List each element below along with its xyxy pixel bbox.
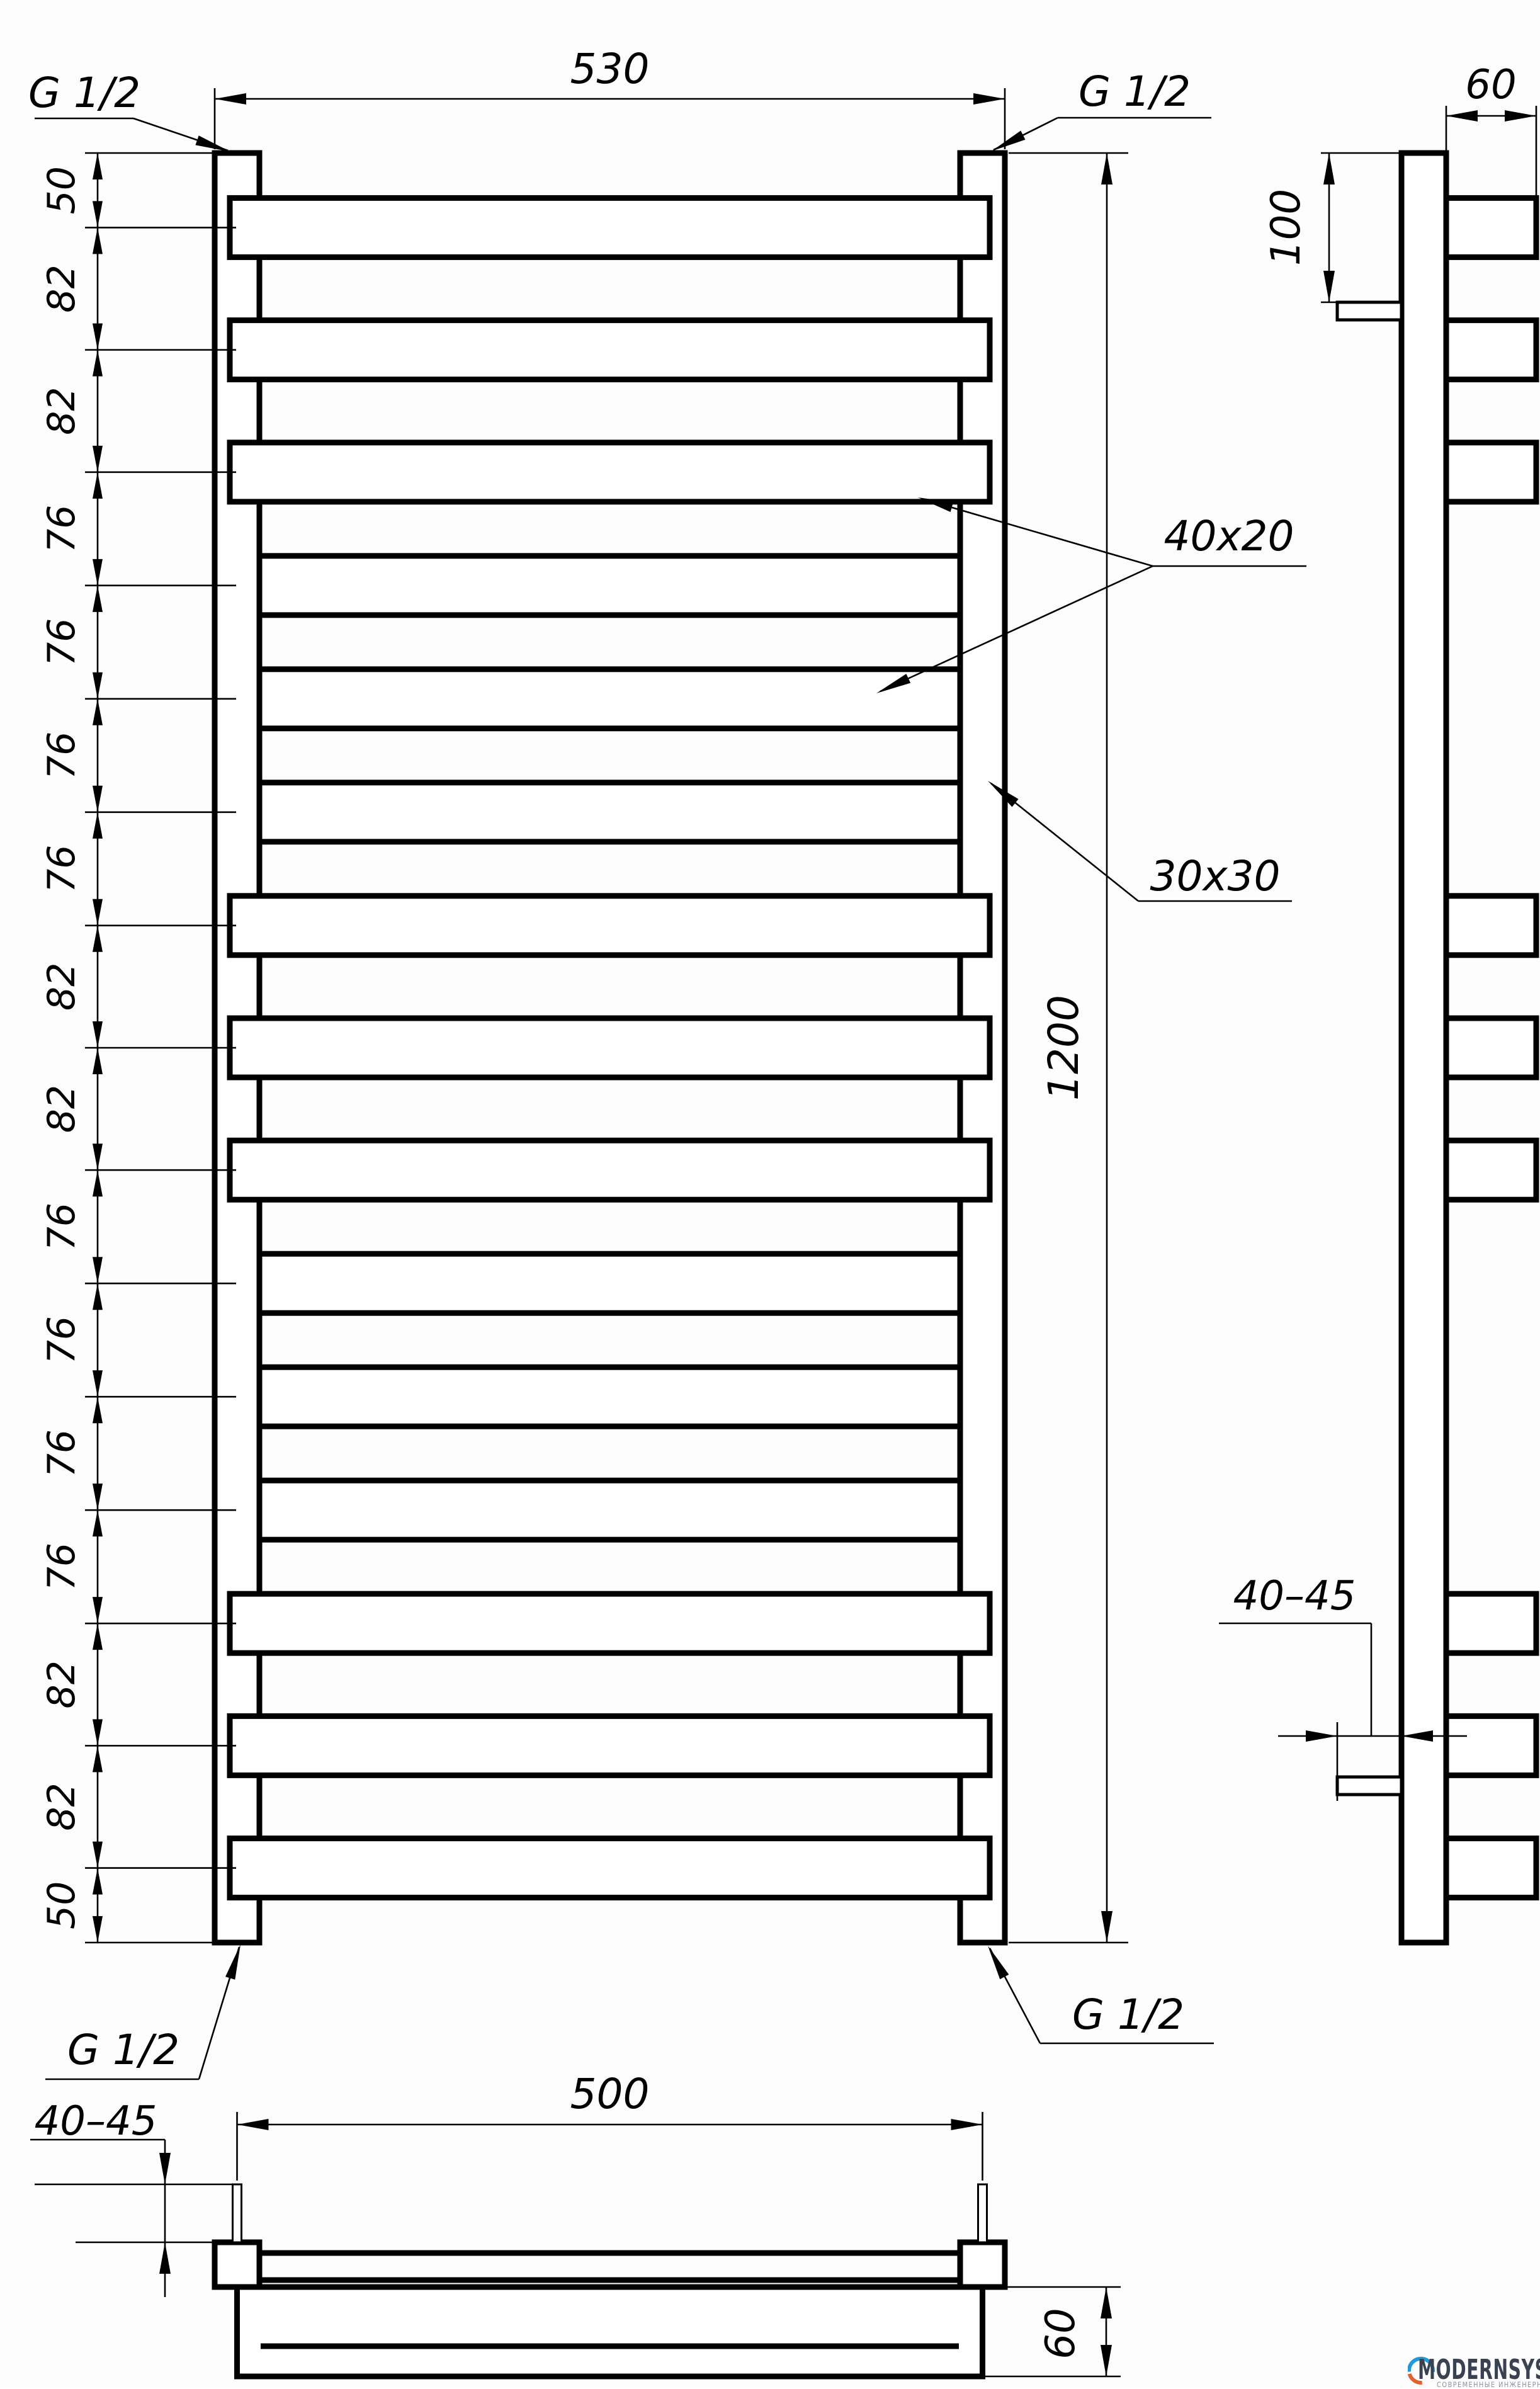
chain-dim-0: 50 (40, 166, 84, 214)
chain-dim-11: 76 (40, 1429, 84, 1477)
chain-dim-8: 82 (40, 1085, 84, 1133)
dim-1200: 1200 (1039, 995, 1088, 1101)
arrowhead (93, 1868, 103, 1895)
front-rung-narrow (259, 669, 960, 729)
side-rung (1446, 1594, 1536, 1653)
front-rung-wide (230, 896, 990, 955)
thread-bottom-left-arrow (225, 1944, 241, 1980)
drawing-sheet: 5301200508282767676768282767676768282501… (0, 0, 1540, 2388)
arrowhead (93, 446, 103, 472)
rail-profile-label-text: 30x30 (1150, 852, 1280, 900)
thread-bottom-right-text: G 1/2 (1072, 1990, 1184, 2039)
chain-dim-15: 50 (40, 1881, 84, 1929)
arrowhead (237, 2119, 269, 2130)
arrowhead (1505, 110, 1536, 122)
front-rung-wide (230, 198, 990, 257)
front-rung-wide (230, 321, 990, 380)
front-rung-narrow (259, 783, 960, 842)
bottom-left-rail-section (215, 2242, 259, 2287)
side-rung (1446, 1018, 1536, 1077)
front-rung-narrow (259, 1367, 960, 1426)
arrowhead (93, 1397, 103, 1423)
thread-bottom-right-arrow (988, 1946, 1009, 1979)
front-rung-wide (230, 1018, 990, 1077)
chain-dim-14: 82 (40, 1783, 84, 1830)
arrowhead (93, 1021, 103, 1048)
arrowhead (93, 1283, 103, 1310)
dim-40-45-bottom: 40–45 (35, 2098, 157, 2145)
arrowhead (159, 2153, 171, 2184)
arrowhead (93, 472, 103, 499)
arrowhead (1101, 2287, 1112, 2318)
arrowhead (93, 201, 103, 227)
chain-dim-6: 76 (40, 845, 84, 893)
chain-dim-9: 76 (40, 1203, 84, 1251)
dim-40-45-side: 40–45 (1233, 1573, 1356, 1620)
dim-60-side: 60 (1465, 62, 1516, 108)
side-rung (1446, 443, 1536, 502)
bottom-right-rail-section (960, 2242, 1005, 2287)
arrowhead (93, 586, 103, 612)
front-rung-narrow (259, 1254, 960, 1313)
thread-top-left-text: G 1/2 (28, 69, 140, 117)
front-rung-wide (230, 1839, 990, 1898)
dim-500: 500 (570, 2070, 650, 2118)
side-rung (1446, 1839, 1536, 1898)
dim-530: 530 (570, 45, 650, 93)
thread-top-right-text: G 1/2 (1079, 67, 1191, 116)
arrowhead (93, 926, 103, 952)
arrowhead (93, 1719, 103, 1745)
arrowhead (93, 1510, 103, 1536)
arrowhead (1101, 1911, 1113, 1943)
chain-dim-10: 76 (40, 1316, 84, 1364)
chain-dim-2: 82 (40, 387, 84, 435)
arrowhead (93, 672, 103, 699)
bottom-right-bracket-stub (978, 2184, 987, 2242)
arrowhead (1323, 153, 1335, 184)
arrowhead (93, 153, 103, 179)
side-rung (1446, 1716, 1536, 1775)
dim-60-bottom: 60 (1038, 2308, 1084, 2359)
arrowhead (215, 93, 246, 105)
front-rung-wide (230, 1594, 990, 1653)
side-rung (1446, 896, 1536, 955)
arrowhead (93, 699, 103, 725)
arrowhead (1101, 2345, 1112, 2376)
side-rung (1446, 198, 1536, 257)
arrowhead (93, 786, 103, 812)
front-rung-wide (230, 1140, 990, 1200)
arrowhead (93, 559, 103, 586)
front-rung-narrow (259, 1480, 960, 1540)
chain-dim-7: 82 (40, 963, 84, 1011)
arrowhead (93, 1745, 103, 1772)
arrowhead (1101, 153, 1113, 184)
bottom-left-bracket-stub (233, 2184, 242, 2242)
arrowhead (93, 350, 103, 377)
brand-logo: MODERNSYS СОВРЕМЕННЫЕ ИНЖЕНЕРНЫЕ СИСТЕМЫ (1408, 2354, 1540, 2388)
thread-top-right-arrow (992, 130, 1026, 151)
side-rung (1446, 1140, 1536, 1200)
side-rail (1401, 153, 1446, 1943)
towel-rail-drawing: 5301200508282767676768282767676768282501… (0, 0, 1540, 2388)
arrowhead (93, 1842, 103, 1868)
arrowhead (93, 1916, 103, 1943)
rung-profile-label-text: 40x20 (1163, 512, 1294, 560)
front-rung-wide (230, 443, 990, 502)
arrowhead (93, 1370, 103, 1397)
arrowhead (951, 2119, 983, 2130)
chain-dim-13: 82 (40, 1660, 84, 1708)
arrowhead (93, 812, 103, 839)
arrowhead (93, 1484, 103, 1510)
arrowhead (1446, 110, 1478, 122)
dim-100: 100 (1263, 189, 1310, 266)
arrowhead (1306, 1730, 1337, 1742)
arrowhead (93, 1257, 103, 1283)
chain-dim-1: 82 (40, 264, 84, 312)
chain-dim-4: 76 (40, 618, 84, 666)
thread-bottom-left-text: G 1/2 (67, 2026, 179, 2074)
side-rung (1446, 321, 1536, 380)
arrowhead (93, 1623, 103, 1650)
thread-top-left-arrow (195, 135, 230, 152)
chain-dim-3: 76 (40, 505, 84, 553)
chain-dim-12: 76 (40, 1543, 84, 1591)
arrowhead (93, 899, 103, 926)
arrowhead (93, 324, 103, 350)
arrowhead (93, 1048, 103, 1074)
arrowhead (159, 2242, 171, 2274)
bottom-protruding-rung (237, 2287, 983, 2376)
arrowhead (93, 227, 103, 254)
arrowhead (93, 1170, 103, 1196)
arrowhead (973, 93, 1005, 105)
chain-dim-5: 76 (40, 732, 84, 780)
side-bracket-bottom (1337, 1777, 1401, 1795)
front-rung-wide (230, 1716, 990, 1775)
front-rung-narrow (259, 556, 960, 615)
arrowhead (1323, 271, 1335, 302)
arrowhead (93, 1597, 103, 1623)
side-bracket-top (1337, 302, 1401, 320)
arrowhead (93, 1143, 103, 1170)
